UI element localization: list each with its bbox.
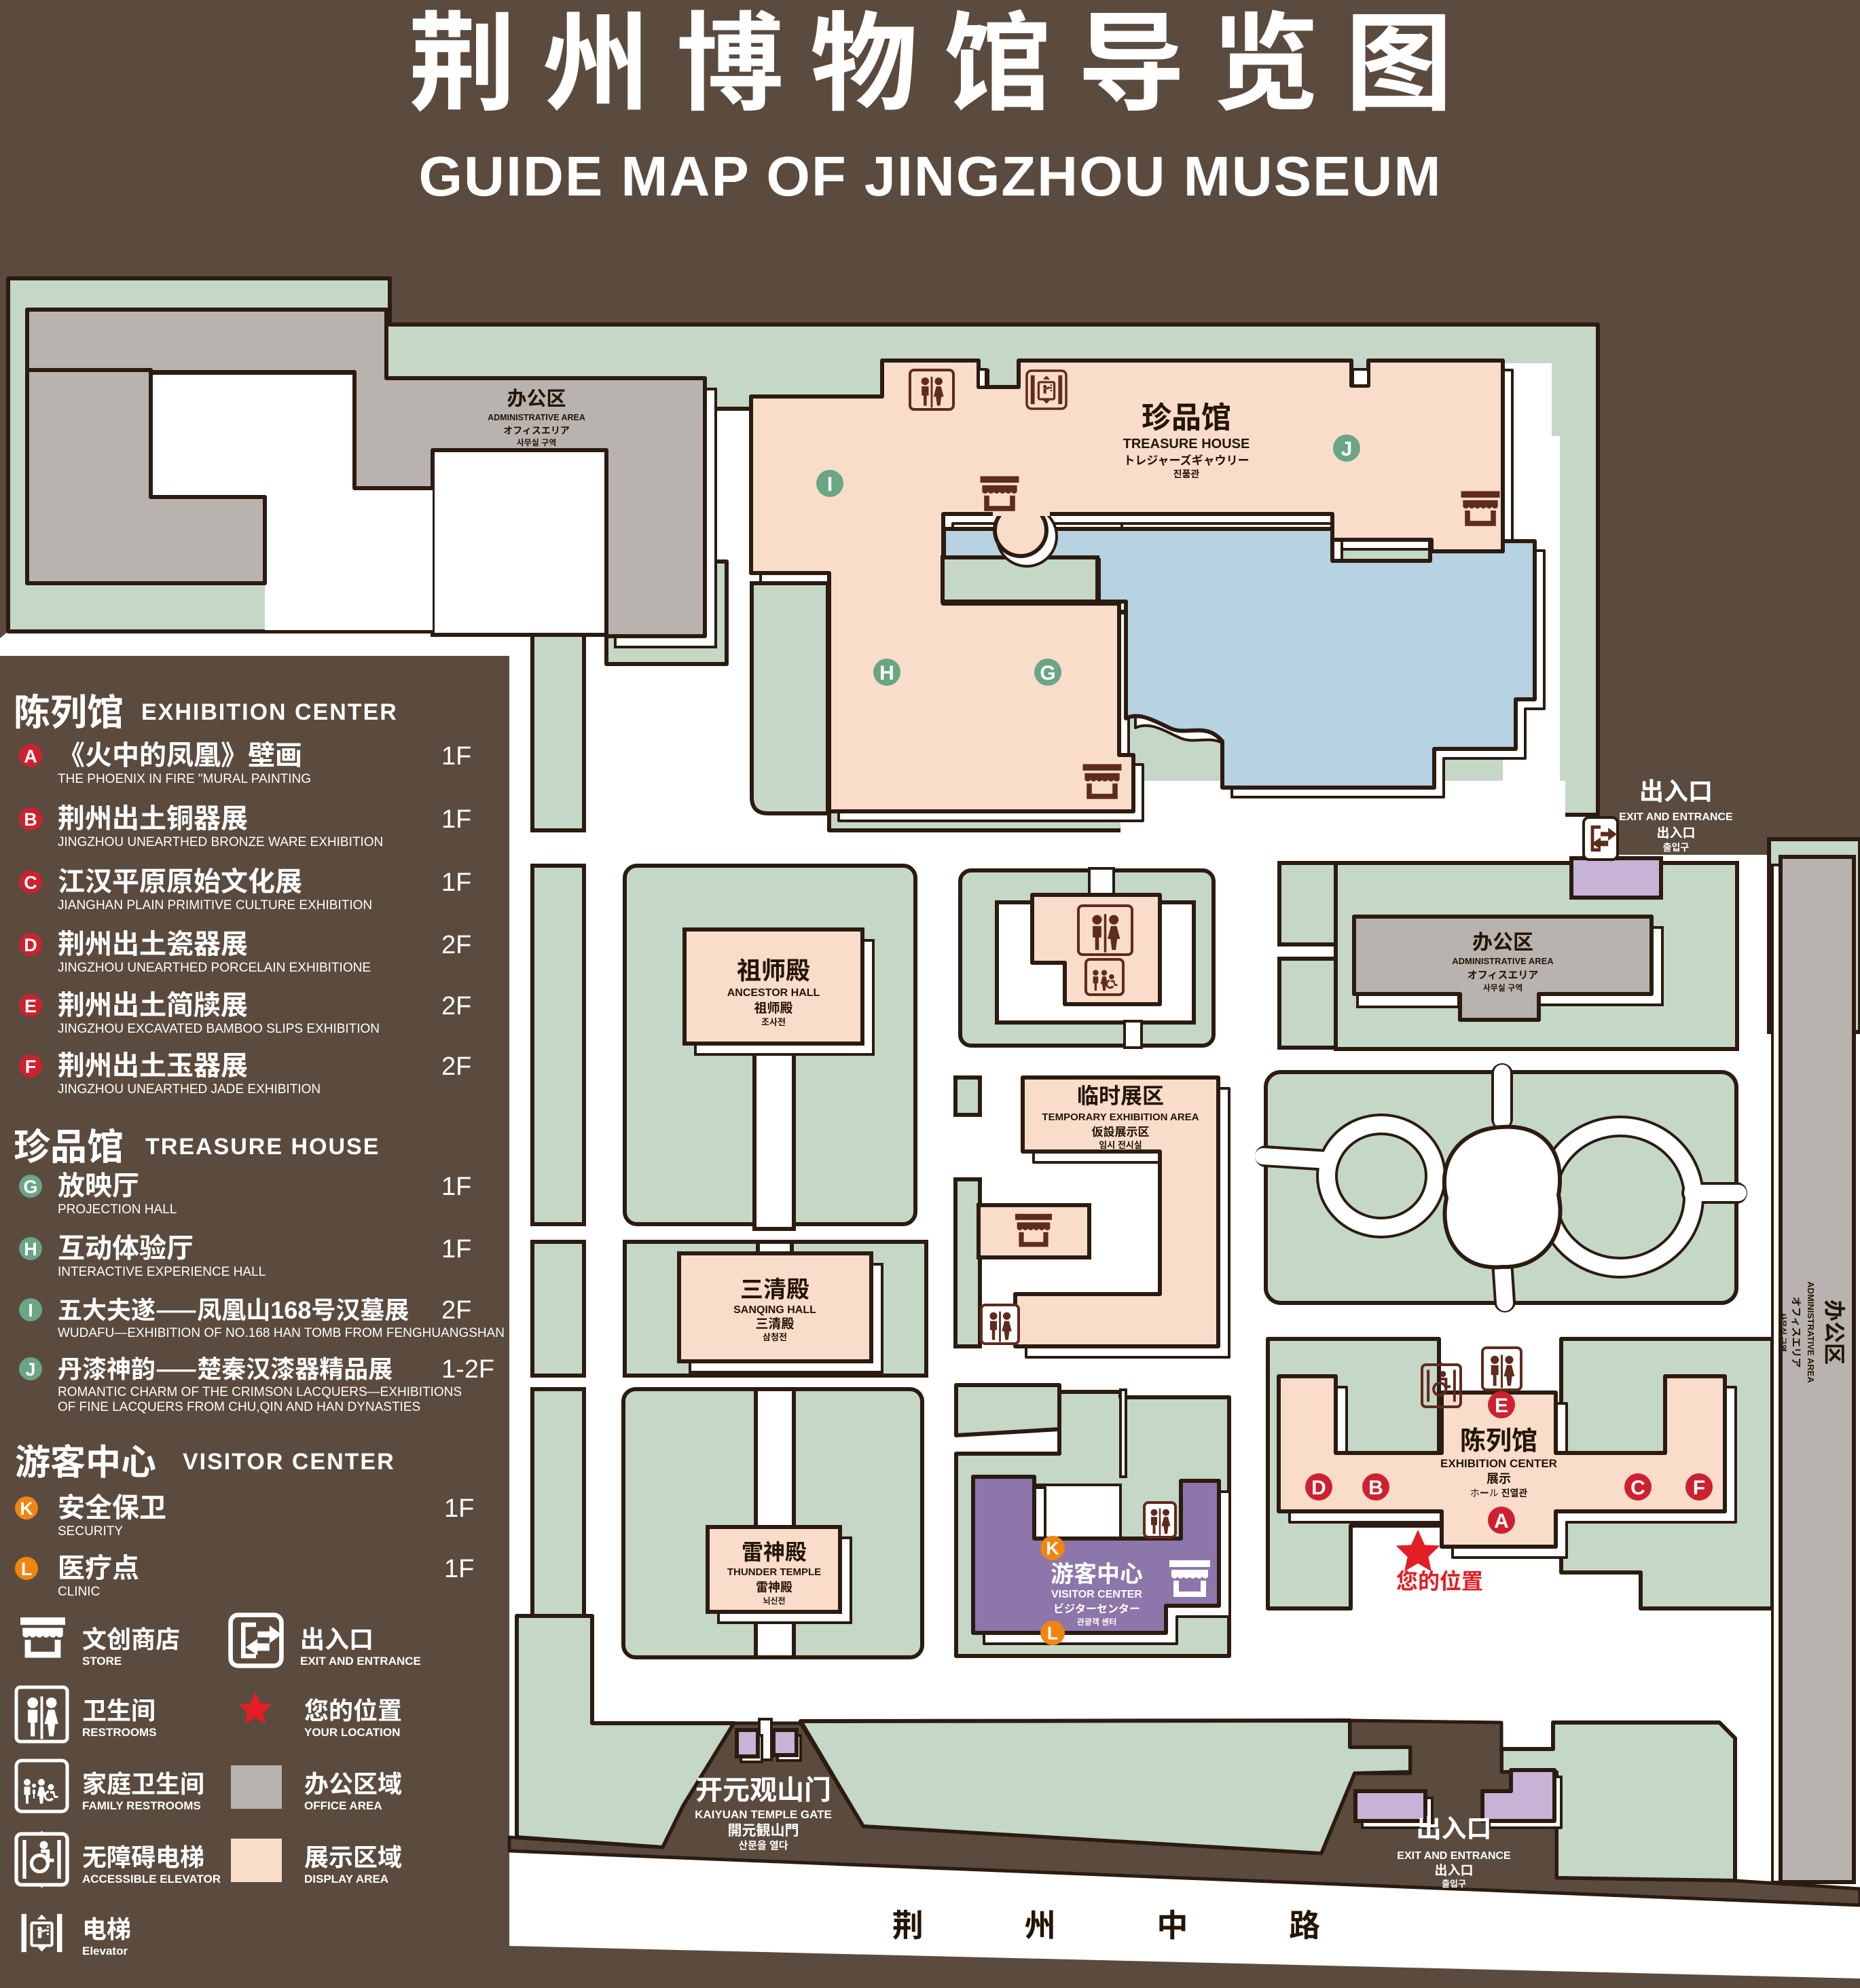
svg-text:ANCESTOR HALL: ANCESTOR HALL [727, 987, 820, 999]
svg-text:出入口: 出入口 [1639, 772, 1713, 807]
svg-text:OF FINE LACQUERS FROM CHU,QIN: OF FINE LACQUERS FROM CHU,QIN AND HAN DY… [58, 1400, 420, 1414]
svg-text:珍品馆: 珍品馆 [1142, 393, 1231, 437]
svg-text:雷神殿: 雷神殿 [756, 1578, 792, 1596]
svg-text:2F: 2F [441, 992, 471, 1020]
svg-text:家庭卫生间: 家庭卫生间 [82, 1765, 204, 1800]
svg-text:DISPLAY AREA: DISPLAY AREA [304, 1873, 388, 1885]
svg-text:您的位置: 您的位置 [304, 1691, 402, 1727]
svg-text:文创商店: 文创商店 [82, 1620, 180, 1655]
svg-text:江汉平原原始文化展: 江汉平原原始文化展 [58, 860, 302, 899]
svg-text:オフィスエリア: オフィスエリア [503, 424, 570, 437]
svg-text:D: D [1311, 1477, 1326, 1499]
svg-text:OFFICE AREA: OFFICE AREA [304, 1799, 382, 1812]
svg-text:荆州出土玉器展: 荆州出土玉器展 [58, 1044, 248, 1083]
svg-text:您的位置: 您的位置 [1396, 1564, 1483, 1596]
svg-text:JIANGHAN PLAIN PRIMITIVE CULTU: JIANGHAN PLAIN PRIMITIVE CULTURE EXHIBIT… [58, 898, 372, 913]
svg-text:H: H [879, 662, 894, 684]
svg-text:I: I [28, 1300, 33, 1321]
svg-text:ACCESSIBLE ELEVATOR: ACCESSIBLE ELEVATOR [82, 1873, 221, 1885]
svg-text:PROJECTION HALL: PROJECTION HALL [58, 1202, 177, 1217]
svg-text:1F: 1F [441, 1235, 471, 1264]
svg-text:TEMPORARY EXHIBITION AREA: TEMPORARY EXHIBITION AREA [1042, 1111, 1199, 1123]
svg-text:관광객 센터: 관광객 센터 [1077, 1616, 1117, 1627]
svg-text:ホール 진열관: ホール 진열관 [1470, 1486, 1528, 1500]
svg-text:조사전: 조사전 [761, 1015, 786, 1028]
svg-text:H: H [24, 1239, 37, 1259]
svg-text:사무실 구역: 사무실 구역 [1483, 982, 1523, 993]
svg-text:EXIT AND ENTRANCE: EXIT AND ENTRANCE [300, 1655, 421, 1668]
svg-text:陈列馆: 陈列馆 [14, 682, 124, 736]
svg-text:VISITOR CENTER: VISITOR CENTER [1051, 1589, 1142, 1600]
svg-text:CLINIC: CLINIC [58, 1585, 100, 1599]
svg-text:JINGZHOU EXCAVATED BAMBOO SLIP: JINGZHOU EXCAVATED BAMBOO SLIPS EXHIBITI… [58, 1022, 380, 1036]
svg-text:VISITOR CENTER: VISITOR CENTER [183, 1449, 395, 1475]
svg-text:RESTROOMS: RESTROOMS [82, 1726, 157, 1739]
svg-text:放映厅: 放映厅 [58, 1164, 139, 1203]
svg-text:出入口: 出入口 [1656, 823, 1695, 841]
svg-text:STORE: STORE [82, 1655, 122, 1668]
svg-text:THE PHOENIX IN FIRE "MURAL PAI: THE PHOENIX IN FIRE "MURAL PAINTING [58, 772, 311, 786]
svg-text:トレジャーズギャウリー: トレジャーズギャウリー [1123, 451, 1249, 468]
svg-text:JINGZHOU UNEARTHED PORCELAIN E: JINGZHOU UNEARTHED PORCELAIN EXHIBITIONE [58, 961, 371, 975]
svg-text:B: B [24, 809, 37, 830]
svg-text:2F: 2F [441, 931, 471, 959]
svg-text:出入口: 出入口 [1434, 1860, 1473, 1879]
svg-text:F: F [25, 1056, 37, 1077]
svg-text:B: B [1368, 1477, 1383, 1499]
svg-text:办公区: 办公区 [507, 383, 566, 411]
svg-text:电梯: 电梯 [82, 1910, 131, 1945]
svg-text:安全保卫: 安全保卫 [58, 1486, 166, 1525]
svg-text:ADMINISTRATIVE AREA: ADMINISTRATIVE AREA [488, 413, 585, 422]
svg-text:三清殿: 三清殿 [755, 1314, 794, 1332]
svg-text:ADMINISTRATIVE AREA: ADMINISTRATIVE AREA [1452, 956, 1554, 966]
svg-text:E: E [24, 996, 37, 1016]
svg-text:临时展区: 临时展区 [1077, 1079, 1164, 1110]
svg-text:EXIT AND ENTRANCE: EXIT AND ENTRANCE [1619, 811, 1733, 823]
svg-text:A: A [24, 746, 37, 767]
svg-text:珍品馆: 珍品馆 [14, 1117, 124, 1171]
svg-text:卫生间: 卫生间 [82, 1691, 156, 1727]
svg-text:YOUR LOCATION: YOUR LOCATION [304, 1726, 400, 1739]
svg-text:荆州出土铜器展: 荆州出土铜器展 [58, 796, 248, 836]
svg-text:1F: 1F [441, 742, 471, 771]
svg-text:JINGZHOU UNEARTHED JADE EXHIBI: JINGZHOU UNEARTHED JADE EXHIBITION [58, 1082, 321, 1097]
svg-text:1F: 1F [444, 1555, 474, 1583]
svg-text:1F: 1F [441, 868, 471, 897]
svg-text:丹漆神韵——楚秦汉漆器精品展: 丹漆神韵——楚秦汉漆器精品展 [58, 1350, 393, 1385]
svg-text:开元观山门: 开元观山门 [695, 1768, 831, 1807]
svg-text:オフィスエリア: オフィスエリア [1789, 1297, 1804, 1368]
svg-text:임시 전시실: 임시 전시실 [1099, 1138, 1142, 1151]
svg-text:사무실 구역: 사무실 구역 [1777, 1312, 1789, 1352]
svg-text:F: F [1693, 1477, 1705, 1499]
svg-text:G: G [23, 1177, 37, 1197]
svg-text:E: E [1495, 1395, 1508, 1417]
svg-text:1F: 1F [444, 1494, 474, 1523]
svg-text:THUNDER TEMPLE: THUNDER TEMPLE [727, 1566, 821, 1578]
svg-text:출입구: 출입구 [1442, 1877, 1466, 1890]
svg-text:G: G [1040, 662, 1055, 684]
svg-text:WUDAFU—EXHIBITION OF NO.168 HA: WUDAFU—EXHIBITION OF NO.168 HAN TOMB FRO… [58, 1326, 505, 1340]
svg-text:游客中心: 游客中心 [1051, 1556, 1143, 1589]
svg-text:陈列馆: 陈列馆 [1460, 1420, 1537, 1457]
svg-text:雷神殿: 雷神殿 [742, 1535, 807, 1566]
svg-text:办公区: 办公区 [1472, 925, 1533, 955]
svg-text:JINGZHOU UNEARTHED BRONZE WARE: JINGZHOU UNEARTHED BRONZE WARE EXHIBITIO… [58, 835, 383, 849]
svg-text:EXHIBITION CENTER: EXHIBITION CENTER [1440, 1457, 1557, 1470]
svg-text:《火中的凤凰》壁画: 《火中的凤凰》壁画 [58, 733, 302, 773]
svg-text:산문을 열다: 산문을 열다 [738, 1838, 788, 1852]
svg-text:FAMILY RESTROOMS: FAMILY RESTROOMS [82, 1799, 201, 1812]
svg-text:SECURITY: SECURITY [58, 1524, 123, 1539]
svg-text:I: I [827, 473, 833, 496]
svg-text:L: L [21, 1559, 33, 1579]
svg-text:출입구: 출입구 [1663, 841, 1690, 854]
svg-text:1F: 1F [441, 1173, 471, 1201]
svg-text:展示: 展示 [1487, 1469, 1511, 1487]
svg-text:三清殿: 三清殿 [740, 1271, 809, 1304]
svg-text:游客中心: 游客中心 [15, 1434, 156, 1485]
svg-text:삼청전: 삼청전 [763, 1330, 787, 1343]
svg-text:TREASURE HOUSE: TREASURE HOUSE [145, 1134, 380, 1160]
svg-text:진품관: 진품관 [1173, 467, 1200, 481]
svg-text:뇌신전: 뇌신전 [763, 1595, 785, 1606]
svg-text:K: K [20, 1498, 33, 1519]
svg-text:TREASURE HOUSE: TREASURE HOUSE [1123, 437, 1250, 452]
svg-text:办公区域: 办公区域 [304, 1765, 402, 1800]
svg-text:開元観山門: 開元観山門 [728, 1820, 799, 1840]
svg-text:INTERACTIVE EXPERIENCE HALL: INTERACTIVE EXPERIENCE HALL [58, 1265, 266, 1279]
svg-text:ADMINISTRATIVE AREA: ADMINISTRATIVE AREA [1806, 1281, 1816, 1383]
svg-text:オフィスエリア: オフィスエリア [1467, 968, 1539, 982]
svg-text:互动体验厅: 互动体验厅 [58, 1226, 194, 1266]
svg-text:仮設展示区: 仮設展示区 [1092, 1122, 1150, 1139]
svg-text:办公区: 办公区 [1820, 1300, 1851, 1365]
svg-text:荆州出土瓷器展: 荆州出土瓷器展 [58, 922, 248, 961]
svg-text:ビジターセンター: ビジターセンター [1053, 1600, 1140, 1616]
svg-text:无障碍电梯: 无障碍电梯 [82, 1838, 204, 1873]
svg-text:A: A [1494, 1510, 1509, 1532]
svg-text:J: J [1341, 438, 1353, 460]
svg-text:2F: 2F [441, 1296, 471, 1325]
svg-text:1-2F: 1-2F [441, 1355, 494, 1384]
svg-text:C: C [24, 872, 37, 893]
svg-text:사무실 구역: 사무실 구역 [517, 437, 557, 448]
svg-text:荆 州 中 路: 荆 州 中 路 [892, 1901, 1366, 1946]
svg-text:2F: 2F [441, 1052, 471, 1081]
svg-text:C: C [1630, 1477, 1645, 1499]
svg-text:Elevator: Elevator [82, 1945, 128, 1957]
svg-text:L: L [1047, 1623, 1059, 1644]
svg-text:祖师殿: 祖师殿 [754, 998, 792, 1016]
svg-text:五大夫遂——凤凰山168号汉墓展: 五大夫遂——凤凰山168号汉墓展 [58, 1291, 409, 1326]
svg-text:荆州出土简牍展: 荆州出土简牍展 [58, 983, 248, 1023]
svg-text:医疗点: 医疗点 [58, 1546, 139, 1585]
svg-text:GUIDE MAP OF JINGZHOU MUSEUM: GUIDE MAP OF JINGZHOU MUSEUM [418, 145, 1442, 208]
svg-text:出入口: 出入口 [1417, 1808, 1492, 1845]
svg-text:ROMANTIC CHARM OF THE CRIMSON: ROMANTIC CHARM OF THE CRIMSON LACQUERS—E… [58, 1385, 462, 1399]
svg-text:J: J [25, 1359, 35, 1380]
svg-text:荆州博物馆导览图: 荆州博物馆导览图 [409, 0, 1479, 132]
svg-text:D: D [24, 935, 37, 955]
svg-text:展示区域: 展示区域 [304, 1838, 402, 1873]
svg-text:EXHIBITION CENTER: EXHIBITION CENTER [141, 699, 398, 725]
svg-text:祖师殿: 祖师殿 [737, 951, 810, 987]
svg-text:1F: 1F [441, 805, 471, 834]
svg-text:出入口: 出入口 [300, 1620, 373, 1655]
